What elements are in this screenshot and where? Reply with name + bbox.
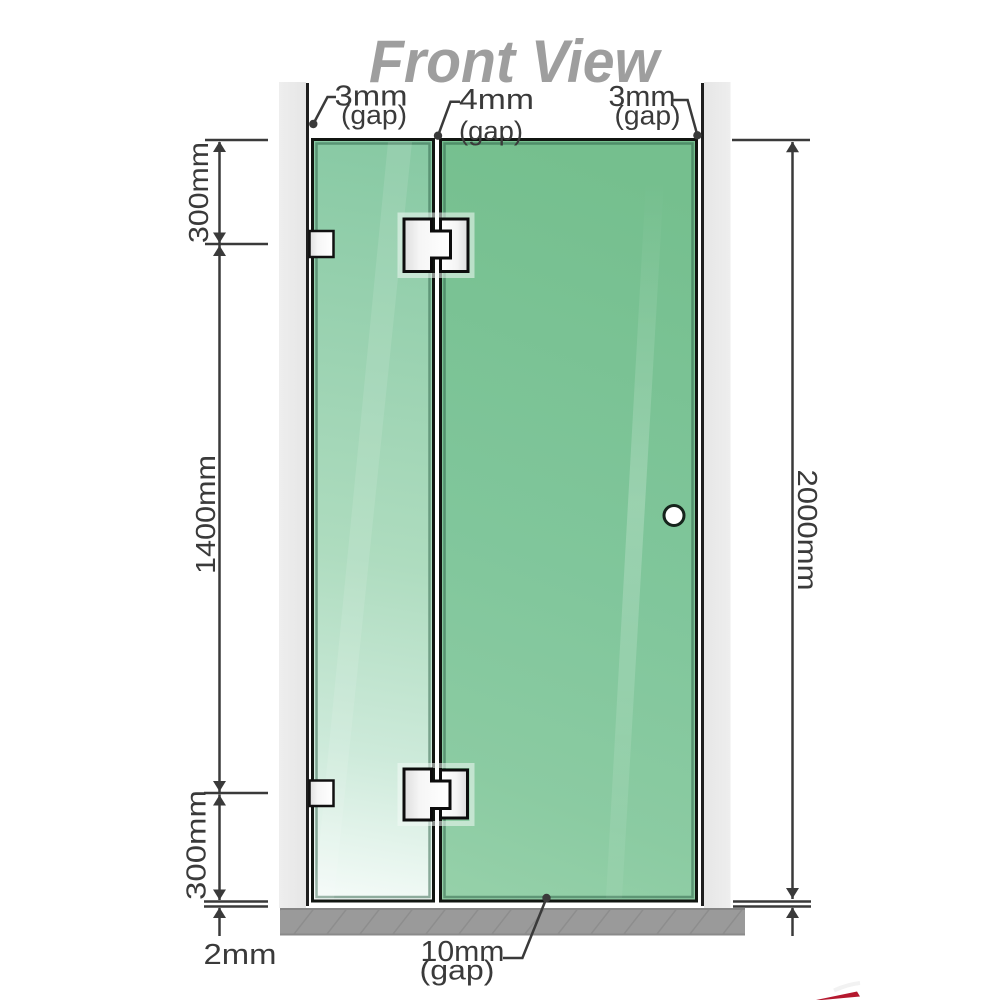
svg-text:(gap): (gap)	[459, 116, 523, 146]
svg-text:2mm: 2mm	[204, 939, 277, 971]
svg-text:2000mm: 2000mm	[792, 470, 823, 591]
svg-text:1400mm: 1400mm	[190, 455, 221, 574]
svg-text:(gap): (gap)	[420, 955, 495, 986]
svg-text:300mm: 300mm	[183, 142, 214, 243]
svg-text:300mm: 300mm	[181, 790, 212, 900]
svg-text:4mm: 4mm	[459, 84, 534, 116]
svg-text:(gap): (gap)	[615, 101, 681, 131]
svg-text:(gap): (gap)	[341, 100, 407, 130]
